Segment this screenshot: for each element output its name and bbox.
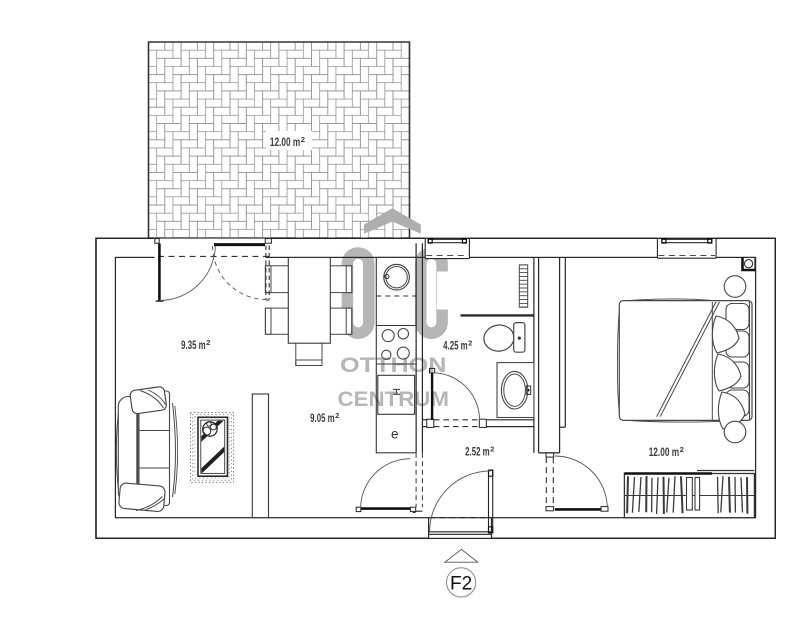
svg-text:H: H bbox=[390, 388, 402, 396]
svg-text:12.00 m: 12.00 m bbox=[270, 135, 300, 149]
svg-text:2: 2 bbox=[680, 445, 684, 454]
svg-text:4.25 m: 4.25 m bbox=[443, 339, 468, 353]
svg-text:2: 2 bbox=[301, 135, 305, 144]
svg-text:2: 2 bbox=[490, 444, 494, 453]
svg-text:12.00 m: 12.00 m bbox=[649, 445, 679, 459]
svg-text:OTTHON: OTTHON bbox=[340, 354, 447, 377]
svg-text:9.35 m: 9.35 m bbox=[181, 338, 206, 352]
svg-text:e: e bbox=[391, 427, 399, 442]
svg-text:2: 2 bbox=[335, 411, 339, 420]
svg-text:9.05 m: 9.05 m bbox=[310, 411, 335, 425]
svg-text:2: 2 bbox=[468, 338, 472, 347]
svg-text:2: 2 bbox=[206, 338, 210, 347]
svg-text:F2: F2 bbox=[450, 573, 472, 594]
svg-text:2.52 m: 2.52 m bbox=[465, 445, 490, 459]
